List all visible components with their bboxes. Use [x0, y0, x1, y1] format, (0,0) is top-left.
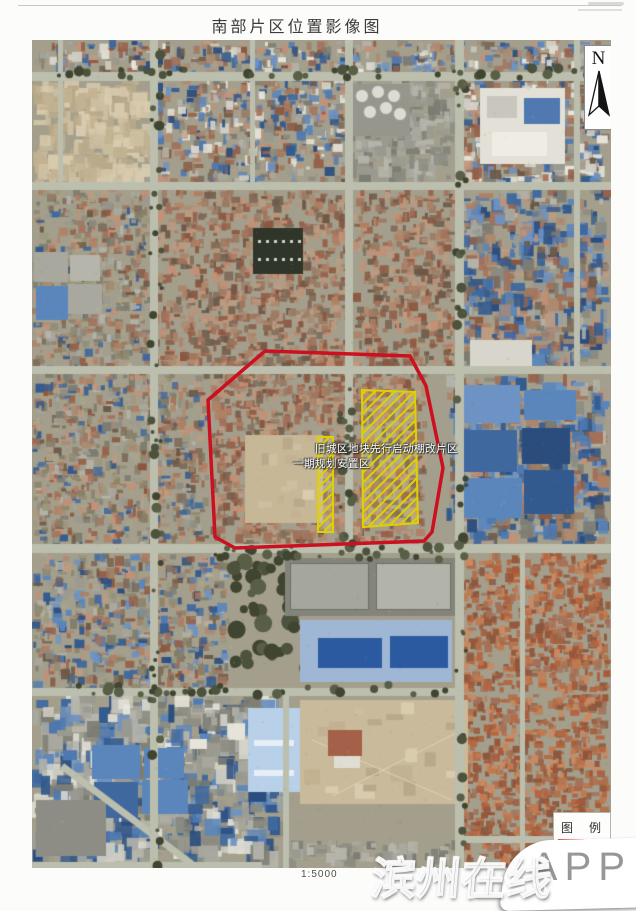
scanned-map-page: 南部片区位置影像图 旧城区地块先行启动棚改片区 一期规划安置区 N 图 — [0, 0, 636, 899]
scale-label: 1:5000 — [301, 869, 338, 880]
hatched-area-main — [362, 390, 418, 527]
satellite-map: 旧城区地块先行启动棚改片区 一期规划安置区 N 图 例 — [32, 40, 611, 868]
scan-artifact-smudge — [578, 9, 622, 11]
north-arrow-icon — [587, 69, 611, 119]
scan-artifact-line — [18, 5, 622, 6]
page-title: 南部片区位置影像图 — [211, 13, 382, 37]
scan-artifact-smudge — [588, 2, 624, 5]
north-label: N — [592, 49, 606, 68]
boundary-label-line1: 旧城区地块先行启动棚改片区 — [315, 441, 458, 456]
watermark-site-name: 滨州在线 — [369, 843, 555, 907]
boundary-label-line2: 一期规划安置区 — [293, 456, 370, 471]
legend-title: 图 例 — [554, 819, 610, 836]
north-arrow: N — [584, 45, 611, 130]
